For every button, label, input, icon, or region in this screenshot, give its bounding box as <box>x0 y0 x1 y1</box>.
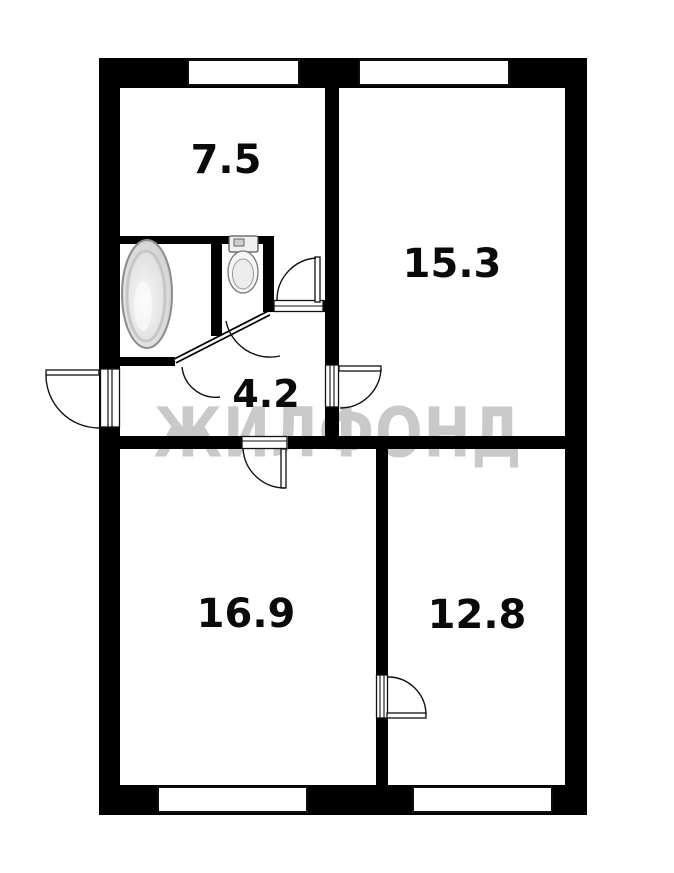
room-label-12-8: 12.8 <box>428 592 527 638</box>
room-label-4-2: 4.2 <box>232 372 299 416</box>
floor-plan: ЖИЛФОНД <box>0 0 674 873</box>
doors-and-fixtures-layer <box>0 0 674 873</box>
door-hall-to-room-7 <box>274 257 323 312</box>
room-label-7-5: 7.5 <box>191 137 262 183</box>
door-room-16-to-room-12 <box>377 675 427 718</box>
room-label-16-9: 16.9 <box>197 591 296 637</box>
room-label-15-3: 15.3 <box>403 241 502 287</box>
door-hall-to-room-15 <box>326 365 382 408</box>
bathtub <box>122 240 172 348</box>
entrance-door <box>46 369 120 428</box>
toilet <box>228 236 258 293</box>
door-hall-to-room-16 <box>242 437 287 489</box>
